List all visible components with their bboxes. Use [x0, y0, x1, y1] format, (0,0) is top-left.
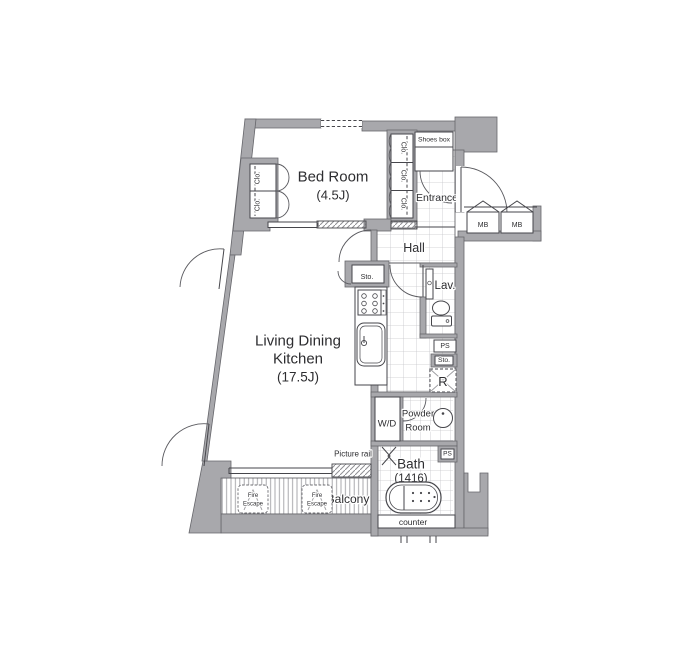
closet-label: Clo. — [400, 170, 407, 183]
bedroom: Bed Room (4.5J) — [298, 169, 369, 203]
wd-row-top-wall — [371, 392, 457, 397]
kitchen: Sto. — [338, 265, 387, 385]
lav-bottom-wall — [420, 334, 457, 338]
meter-boxes: MB MB — [464, 201, 537, 233]
lav-left-wall — [420, 297, 426, 338]
storage-box: Sto. — [435, 356, 453, 365]
floorplan-page: Clo. Clo. Clo. Clo. Clo. Shoes box Entra… — [0, 0, 686, 664]
powder-room-label-line1: Powder — [402, 409, 434, 420]
bedroom-size-label: (4.5J) — [316, 188, 349, 203]
closet-label: Clo. — [255, 172, 262, 185]
bedroom-ldk-partition — [268, 221, 417, 229]
counter-label: counter — [399, 517, 428, 527]
fire-escape-label-line1: Fire — [248, 493, 259, 499]
bedroom-label: Bed Room — [298, 169, 369, 186]
ldk-door-arc — [339, 230, 371, 262]
picture-rail-label: Picture rail — [334, 450, 372, 459]
bedroom-hall-wall-block — [364, 219, 391, 231]
hall-label: Hall — [403, 241, 425, 255]
bedroom-closet-left: Clo. Clo. — [250, 164, 289, 218]
fire-escape-label-line1: Fire — [312, 493, 323, 499]
bedroom-sliding-door — [317, 221, 366, 228]
bedroom-ldk-thin-wall — [268, 222, 318, 228]
bath-label: Bath — [397, 457, 425, 472]
washer-dryer-label: W/D — [378, 419, 397, 430]
front-door-arc — [461, 167, 507, 213]
entrance-label: Entrance — [416, 192, 458, 204]
balcony-bottom-band — [221, 514, 371, 533]
storage-label: Sto. — [438, 357, 450, 364]
bottom-wall-right — [371, 528, 488, 536]
bathtub-icon — [386, 482, 441, 513]
slant-wall-lower — [202, 255, 235, 461]
balcony-label: Balcony — [327, 492, 370, 506]
fire-escape-label-line2: Escape — [307, 502, 328, 508]
fire-escape-hatch-2: Fire Escape — [302, 485, 332, 513]
bedroom-closet-right: Clo. Clo. Clo. — [389, 134, 413, 218]
ldk-side-window-upper — [180, 249, 224, 289]
bedroom-top-window — [321, 119, 362, 128]
closet-label: Clo. — [255, 199, 262, 212]
lav-washbasin-icon — [426, 269, 433, 299]
balcony-sliding-door — [332, 464, 371, 477]
top-wall-left — [245, 119, 321, 128]
meter-box-label: MB — [478, 222, 489, 229]
refrigerator-space: R — [430, 369, 456, 392]
drain-pipe-marks — [401, 536, 436, 543]
bath-pipe-space-label: PS — [443, 451, 452, 458]
kitchen-storage-label: Sto. — [361, 272, 374, 281]
top-wall-right — [362, 121, 462, 131]
closet-bottom-sliding-panel — [391, 221, 417, 229]
closet-label: Clo. — [400, 198, 407, 211]
meter-box-label: MB — [512, 222, 523, 229]
fire-escape-label-line2: Escape — [243, 502, 264, 508]
pipe-space-box: PS — [434, 340, 456, 352]
ldk-wetarea-wall — [371, 366, 378, 536]
lavatory-label: Lav. — [435, 280, 456, 292]
hall-ldk-wall — [371, 230, 377, 265]
pipe-space-label: PS — [440, 343, 450, 350]
bath-top-wall — [371, 441, 457, 446]
balcony-window — [229, 464, 371, 477]
powder-room-label-line2: Room — [405, 423, 430, 434]
powder-basin-icon — [434, 409, 453, 428]
washer-dryer-space: W/D — [375, 397, 400, 441]
ldk-size-label: (17.5J) — [277, 370, 319, 385]
fire-escape-hatch-1: Fire Escape — [238, 485, 268, 513]
ldk-label-line2: Kitchen — [273, 351, 323, 368]
top-right-block — [455, 117, 497, 152]
living-dining-kitchen: Living Dining Kitchen (17.5J) Picture ra… — [162, 249, 372, 466]
ldk-label-line1: Living Dining — [255, 333, 341, 350]
closet-label: Clo. — [400, 142, 407, 155]
floorplan-drawing: Clo. Clo. Clo. Clo. Clo. Shoes box Entra… — [0, 0, 686, 664]
refrigerator-label: R — [438, 374, 447, 389]
lav-top-wall — [420, 263, 457, 267]
kitchen-sink-icon — [357, 323, 385, 366]
shoes-box-label: Shoes box — [418, 137, 451, 144]
bottom-right-block — [464, 473, 488, 534]
